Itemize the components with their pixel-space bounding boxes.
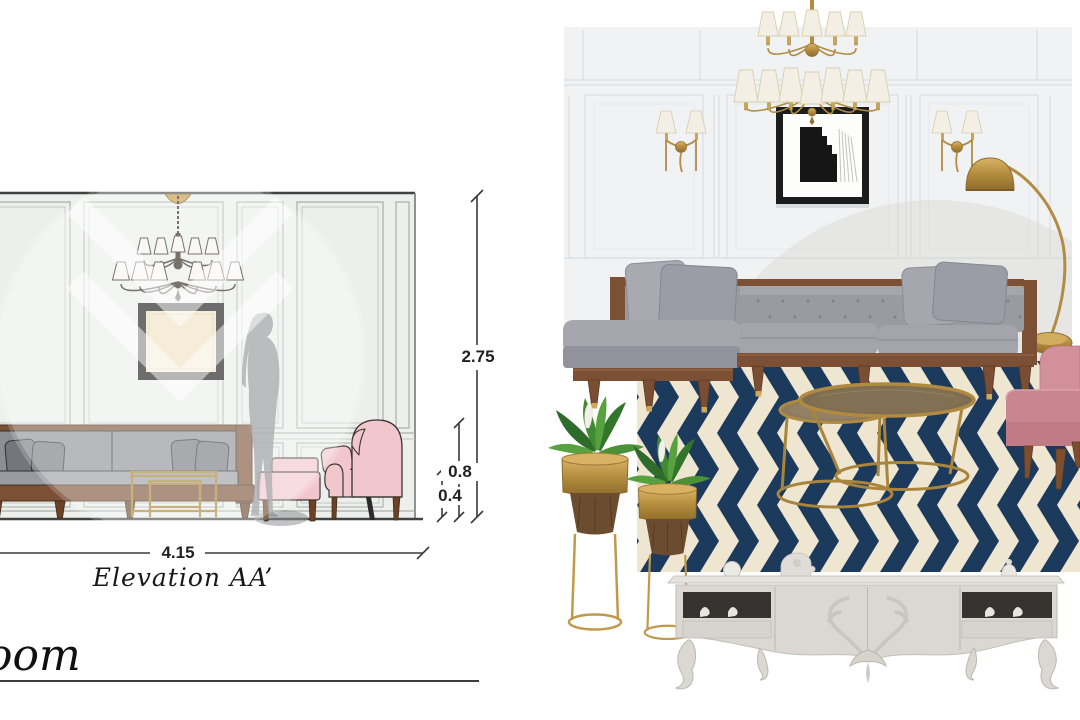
elevation-drawing [0,185,500,605]
dimension-height-table: 0.4 [431,487,469,505]
footer-rule [0,680,479,682]
watermark-logo-left [0,185,362,537]
dimension-width-total: 4.15 [154,544,202,562]
page-title-partial: oom [0,630,81,681]
brass-planter-large [548,396,644,630]
dimension-height-total: 2.75 [455,348,501,366]
moodboard [540,0,1080,720]
ornate-tv-console [668,553,1064,689]
moodboard-framed-artwork [776,107,869,208]
dimension-height-sofa: 0.8 [441,463,479,481]
elevation-caption: Elevation AA’ [63,563,303,592]
interior-design-board: 2.75 0.8 0.4 4.15 Elevation AA’ [0,0,1080,720]
